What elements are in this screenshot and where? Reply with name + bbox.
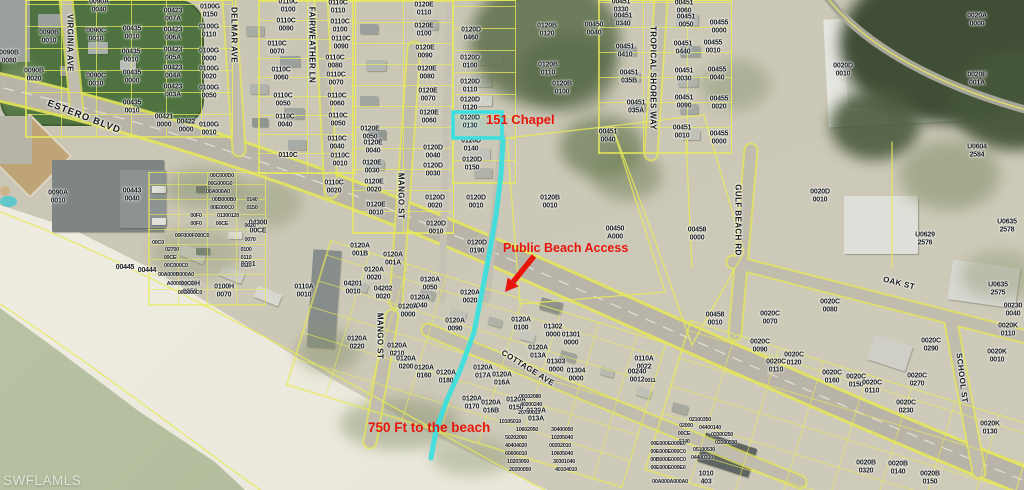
beach-access-annotation: Public Beach Access bbox=[503, 241, 628, 255]
direction-arrow-shaft bbox=[513, 256, 534, 282]
distance-annotation: 750 Ft to the beach bbox=[368, 420, 490, 435]
aerial-map: 0090A 00400090B 00100090C 00100090B 0080… bbox=[0, 0, 1024, 490]
chapel-annotation: 151 Chapel bbox=[486, 112, 555, 127]
route-path bbox=[431, 139, 503, 458]
watermark: SWFLAMLS bbox=[3, 473, 81, 488]
